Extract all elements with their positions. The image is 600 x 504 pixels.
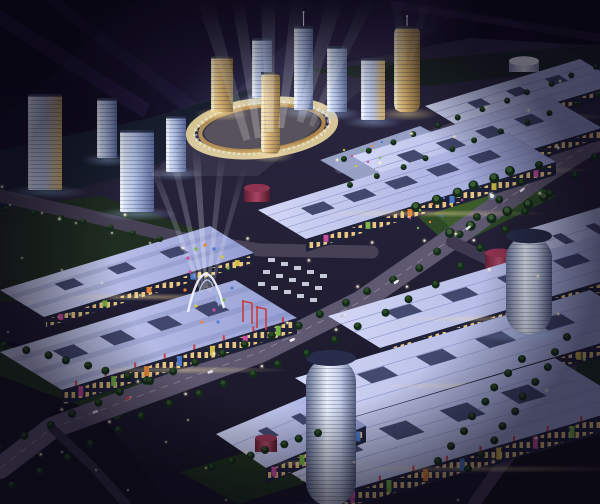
city-night-rendering [0, 0, 600, 504]
rendering-canvas [0, 0, 600, 504]
vignette [0, 0, 600, 504]
